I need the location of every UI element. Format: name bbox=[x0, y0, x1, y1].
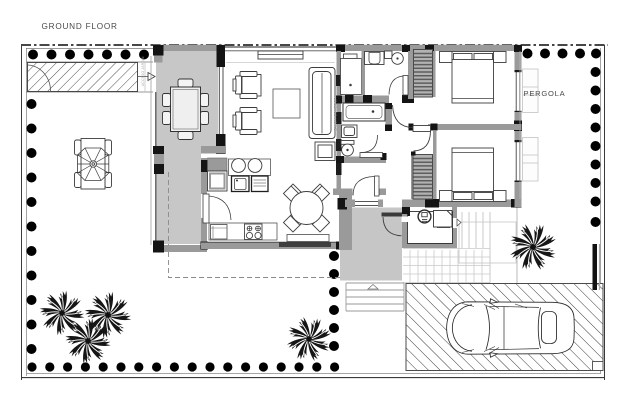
svg-text:GROUND FLOOR: GROUND FLOOR bbox=[42, 22, 118, 31]
svg-text:SALON COMEDOR: SALON COMEDOR bbox=[334, 97, 338, 131]
svg-text:PERGOLA: PERGOLA bbox=[524, 89, 566, 98]
svg-text:ACCESO JARDIN: ACCESO JARDIN bbox=[141, 56, 145, 86]
